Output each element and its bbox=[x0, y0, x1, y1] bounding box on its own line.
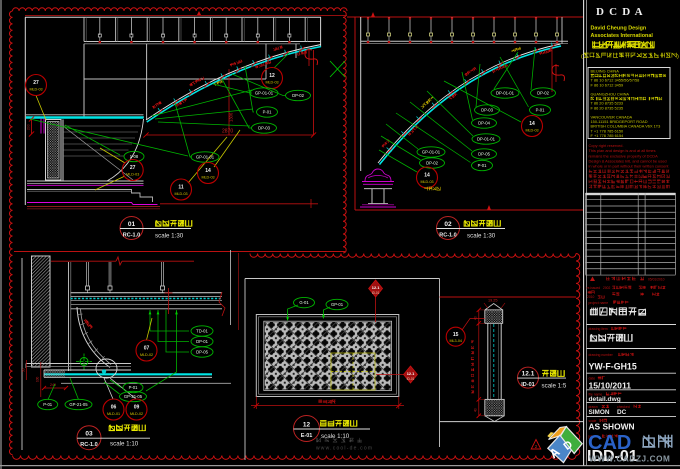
svg-text:2002: 2002 bbox=[603, 286, 611, 290]
svg-text:40: 40 bbox=[474, 408, 478, 412]
svg-text:50: 50 bbox=[22, 368, 26, 372]
svg-text:P-01: P-01 bbox=[129, 385, 139, 390]
svg-text:RC-1.0: RC-1.0 bbox=[123, 233, 140, 239]
svg-text:27: 27 bbox=[33, 80, 39, 86]
svg-text:DP-05: DP-05 bbox=[478, 152, 491, 157]
svg-text:09: 09 bbox=[134, 405, 140, 411]
svg-text:drawing item: drawing item bbox=[589, 327, 608, 331]
svg-text:GP-01: GP-01 bbox=[331, 302, 344, 307]
svg-text:DP-01: DP-01 bbox=[196, 339, 209, 344]
svg-text:scale 1:5: scale 1:5 bbox=[542, 383, 567, 390]
svg-text:GP-21-05: GP-21-05 bbox=[69, 402, 88, 407]
svg-text:2870: 2870 bbox=[222, 129, 233, 135]
svg-text:DP-02: DP-02 bbox=[292, 93, 305, 98]
svg-text:06: 06 bbox=[111, 405, 117, 411]
svg-text:DP-04: DP-04 bbox=[478, 121, 491, 126]
svg-text:P-01: P-01 bbox=[263, 110, 273, 115]
svg-text:12.1: 12.1 bbox=[522, 371, 535, 378]
svg-text:MLD-01: MLD-01 bbox=[107, 412, 120, 416]
svg-text:240: 240 bbox=[50, 383, 56, 387]
svg-text:scale 1:10: scale 1:10 bbox=[110, 441, 139, 448]
svg-text:MLD-02: MLD-02 bbox=[140, 353, 153, 357]
svg-text:scale 1:30: scale 1:30 bbox=[467, 233, 496, 240]
svg-text:GP-01-01: GP-01-01 bbox=[422, 150, 441, 155]
svg-text:DC: DC bbox=[617, 409, 627, 416]
svg-text:12.1: 12.1 bbox=[407, 371, 415, 376]
svg-text:MLD-03: MLD-03 bbox=[174, 192, 187, 196]
svg-text:P-01: P-01 bbox=[478, 163, 488, 168]
svg-text:2010: 2010 bbox=[587, 295, 595, 299]
svg-text:DP-03: DP-03 bbox=[258, 126, 271, 131]
svg-text:P-01: P-01 bbox=[43, 402, 53, 407]
svg-text:MLD-03: MLD-03 bbox=[525, 129, 538, 133]
svg-text:03: 03 bbox=[85, 431, 93, 438]
svg-text:GP-21-05: GP-21-05 bbox=[124, 394, 143, 399]
svg-text:MLD-03: MLD-03 bbox=[420, 180, 433, 184]
svg-text:TD-01: TD-01 bbox=[196, 329, 208, 334]
svg-text:19.25: 19.25 bbox=[488, 299, 498, 303]
svg-text:DP-01-01: DP-01-01 bbox=[496, 91, 515, 96]
svg-text:ID-01: ID-01 bbox=[521, 382, 534, 388]
svg-text:BEIJING CHINA: BEIJING CHINA bbox=[591, 69, 620, 74]
svg-text:12: 12 bbox=[269, 73, 275, 79]
svg-text:scale 1:30: scale 1:30 bbox=[155, 233, 184, 240]
svg-text:14: 14 bbox=[205, 168, 211, 174]
svg-text:GUANGZHOU CHINA: GUANGZHOU CHINA bbox=[591, 92, 630, 97]
svg-text:F +1 778 785 6154: F +1 778 785 6154 bbox=[591, 133, 625, 138]
svg-text:100: 100 bbox=[36, 376, 40, 382]
svg-text:RC-1.0: RC-1.0 bbox=[80, 442, 97, 448]
svg-text:): ) bbox=[677, 54, 679, 60]
svg-text:MLD-03: MLD-03 bbox=[126, 173, 139, 177]
svg-text:27: 27 bbox=[130, 165, 136, 171]
svg-text:Associates International: Associates International bbox=[591, 33, 654, 39]
svg-text:15/10/2011: 15/10/2011 bbox=[589, 381, 632, 391]
svg-text:12: 12 bbox=[303, 422, 311, 429]
svg-text:02: 02 bbox=[444, 221, 452, 228]
svg-text:DP-02: DP-02 bbox=[426, 161, 439, 166]
svg-text:detail.dwg: detail.dwg bbox=[589, 396, 621, 403]
svg-text:ID-01: ID-01 bbox=[407, 377, 415, 381]
svg-text:ID-01: ID-01 bbox=[372, 291, 380, 295]
svg-text:01: 01 bbox=[128, 221, 136, 228]
svg-text:RC-1.0: RC-1.0 bbox=[439, 233, 456, 239]
svg-text:MLD-02: MLD-02 bbox=[130, 412, 143, 416]
svg-text:in whole or in part without th: in whole or in part without their writte… bbox=[589, 164, 670, 169]
svg-text:DP-02: DP-02 bbox=[537, 91, 550, 96]
svg-text:DP-03: DP-03 bbox=[481, 108, 494, 113]
svg-text:14: 14 bbox=[424, 173, 430, 179]
svg-text:15: 15 bbox=[453, 332, 459, 338]
svg-text:05/01/2010: 05/01/2010 bbox=[648, 278, 665, 282]
svg-text:MLD-03: MLD-03 bbox=[201, 176, 214, 180]
svg-text:DP-01-01: DP-01-01 bbox=[477, 137, 496, 142]
svg-text:David Cheung Design: David Cheung Design bbox=[591, 26, 647, 32]
svg-text:F 86 10 6712 3459: F 86 10 6712 3459 bbox=[591, 82, 624, 87]
svg-text:D C D A: D C D A bbox=[596, 6, 644, 18]
svg-text:SIMON: SIMON bbox=[589, 409, 610, 416]
svg-text:GP-01-01: GP-01-01 bbox=[196, 155, 215, 160]
svg-text:www.cool-de.com: www.cool-de.com bbox=[316, 446, 373, 452]
svg-text:MLD-03: MLD-03 bbox=[265, 81, 278, 85]
svg-text:07: 07 bbox=[144, 346, 150, 352]
svg-text:11: 11 bbox=[178, 185, 184, 191]
svg-text:GP-01-01: GP-01-01 bbox=[255, 91, 274, 96]
svg-text:ML3-04: ML3-04 bbox=[449, 339, 462, 343]
svg-text:CAD: CAD bbox=[588, 432, 631, 454]
svg-text:project name: project name bbox=[589, 301, 609, 305]
svg-text:re-issued: re-issued bbox=[587, 286, 601, 290]
svg-text:(: ( bbox=[581, 54, 583, 60]
svg-text:40: 40 bbox=[474, 316, 478, 320]
svg-text:WWW.CADZJ.COM: WWW.CADZJ.COM bbox=[589, 455, 670, 464]
svg-text:AS SHOWN: AS SHOWN bbox=[589, 422, 635, 432]
svg-text:MLD-03: MLD-03 bbox=[29, 88, 42, 92]
svg-text:1306: 1306 bbox=[229, 112, 234, 122]
svg-text:DP-05: DP-05 bbox=[196, 350, 209, 355]
svg-text:P-01: P-01 bbox=[536, 108, 546, 113]
svg-text:E-01: E-01 bbox=[301, 433, 313, 439]
svg-text:12.1: 12.1 bbox=[372, 285, 380, 290]
svg-text:drawing number: drawing number bbox=[589, 353, 614, 357]
svg-text:G-01: G-01 bbox=[299, 300, 309, 305]
svg-text:YW-F-GH15: YW-F-GH15 bbox=[589, 362, 637, 372]
svg-text:14: 14 bbox=[529, 121, 535, 127]
svg-text:F 86 20 8735 5235: F 86 20 8735 5235 bbox=[591, 105, 624, 110]
svg-text:200: 200 bbox=[27, 124, 31, 130]
svg-text:1-08: 1-08 bbox=[130, 154, 139, 159]
